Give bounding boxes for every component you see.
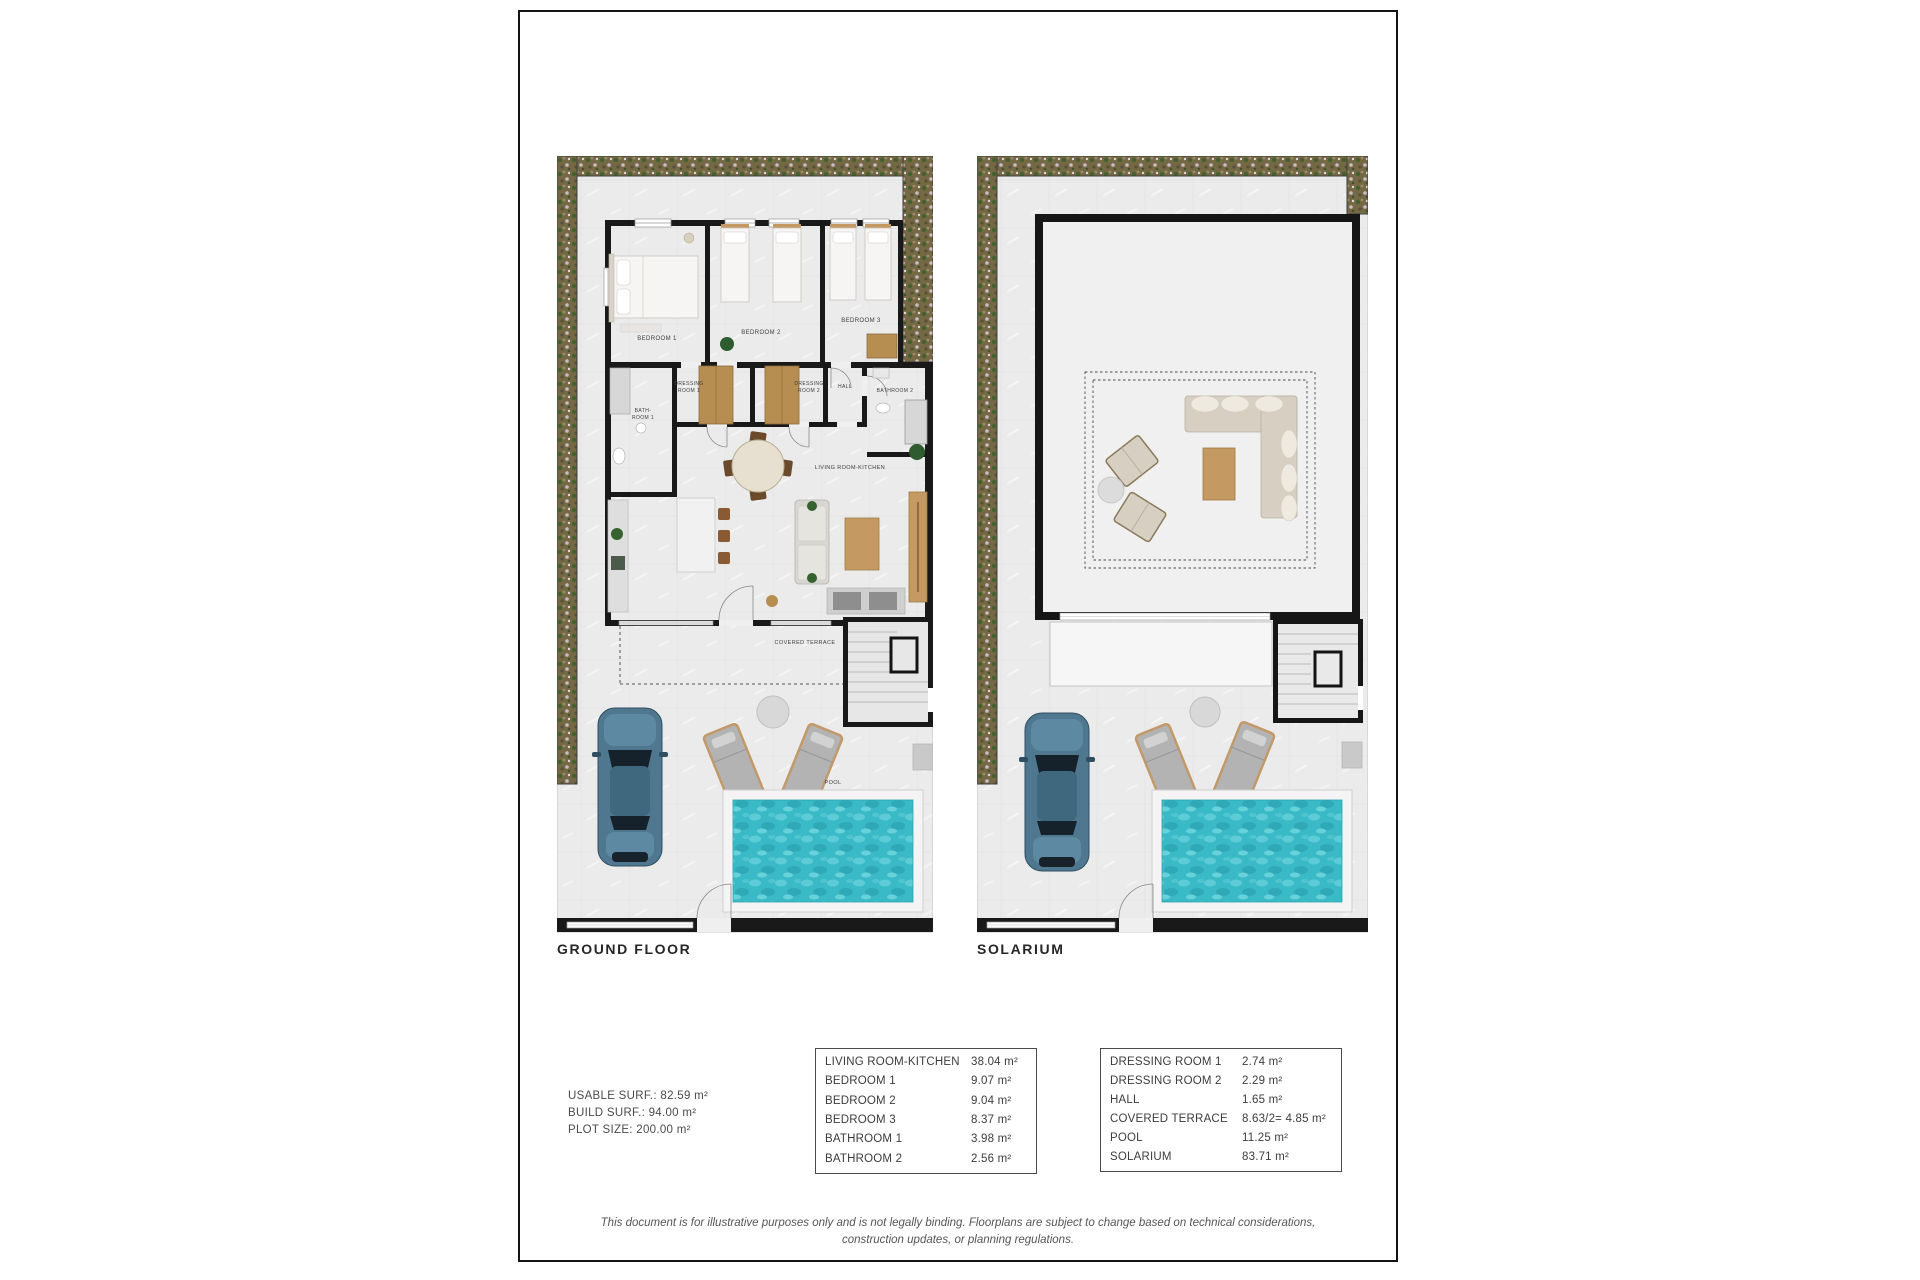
round-table: [757, 696, 789, 728]
svg-text:ROOM 1: ROOM 1: [678, 388, 700, 394]
bathroom-1-label: BATH-: [635, 408, 652, 414]
garden-strip-right: [1347, 156, 1368, 214]
floorplan-document: BEDROOM 1 BEDROOM 2 BEDROOM 3 DRESSING R…: [0, 0, 1920, 1280]
entrance-gap: [1119, 918, 1153, 932]
plot-size: PLOT SIZE: 200.00 m²: [568, 1122, 708, 1139]
usable-surface: USABLE SURF.: 82.59 m²: [568, 1088, 708, 1105]
solarium-caption: SOLARIUM: [977, 941, 1064, 957]
toilet-2: [876, 403, 890, 413]
pool: [723, 790, 923, 912]
garden-strip-top: [977, 156, 1368, 176]
ground-floor-caption: GROUND FLOOR: [557, 941, 691, 957]
wardrobe: [867, 334, 897, 358]
garden-strip-left: [977, 156, 997, 784]
build-surface: BUILD SURF.: 94.00 m²: [568, 1105, 708, 1122]
dressing-2-label: DRESSING: [794, 381, 823, 387]
table-row: BEDROOM 29.04 m²: [816, 1092, 1036, 1111]
kitchen-island: [677, 498, 715, 572]
stool: [718, 508, 730, 520]
table-row: DRESSING ROOM 12.74 m²: [1101, 1053, 1341, 1072]
walkway: [1050, 622, 1272, 686]
stool: [718, 552, 730, 564]
plant: [909, 444, 925, 460]
disclaimer-line: construction updates, or planning regula…: [518, 1232, 1398, 1249]
sink-1: [636, 423, 646, 433]
table-row: BEDROOM 38.37 m²: [816, 1111, 1036, 1130]
svg-text:ROOM 2: ROOM 2: [798, 388, 820, 394]
shower-2: [905, 400, 927, 444]
ground-floor-plan: BEDROOM 1 BEDROOM 2 BEDROOM 3 DRESSING R…: [557, 156, 933, 937]
table-row: POOL11.25 m²: [1101, 1129, 1341, 1148]
pool-label: POOL: [825, 780, 842, 786]
sink-2: [873, 368, 889, 378]
coffee-table: [845, 518, 879, 570]
kitchen-sink: [611, 556, 625, 570]
round-table: [1190, 697, 1220, 727]
garden-strip-right: [903, 156, 933, 362]
plant: [611, 528, 623, 540]
living-room-label: LIVING ROOM-KITCHEN: [815, 465, 885, 471]
table-row: COVERED TERRACE8.63/2= 4.85 m²: [1101, 1110, 1341, 1129]
mat: [1342, 742, 1362, 768]
dressing-1-label: DRESSING: [674, 381, 703, 387]
svg-text:ROOM 1: ROOM 1: [632, 415, 654, 421]
side-table: [766, 595, 778, 607]
stairs: [843, 617, 933, 727]
mat: [913, 744, 933, 770]
plant: [720, 337, 734, 351]
table-row: DRESSING ROOM 22.29 m²: [1101, 1072, 1341, 1091]
garden-strip-left: [557, 156, 577, 784]
bedroom-1-label: BEDROOM 1: [637, 336, 677, 342]
table-row: BATHROOM 13.98 m²: [816, 1130, 1036, 1149]
hall-label: HALL: [838, 384, 852, 390]
car: [1019, 713, 1095, 871]
entrance-gap: [697, 918, 731, 932]
stool: [718, 530, 730, 542]
shower-1: [610, 368, 630, 414]
solarium-plan: [977, 156, 1368, 937]
solarium-structure: [1035, 214, 1360, 686]
disclaimer: This document is for illustrative purpos…: [518, 1215, 1398, 1248]
round-rug: [1098, 477, 1124, 503]
coffee-table: [1203, 448, 1235, 500]
covered-terrace-label: COVERED TERRACE: [775, 640, 836, 646]
table-row: BATHROOM 22.56 m²: [816, 1150, 1036, 1169]
table-row: LIVING ROOM-KITCHEN38.04 m²: [816, 1053, 1036, 1072]
surface-summary: USABLE SURF.: 82.59 m² BUILD SURF.: 94.0…: [568, 1088, 708, 1139]
table-row: HALL1.65 m²: [1101, 1091, 1341, 1110]
bedroom-3-label: BEDROOM 3: [841, 318, 881, 324]
garden-strip-top: [557, 156, 933, 176]
car: [592, 708, 668, 866]
bathroom-2-label: BATHROOM 2: [877, 388, 914, 394]
table-row: SOLARIUM83.71 m²: [1101, 1148, 1341, 1167]
disclaimer-line: This document is for illustrative purpos…: [518, 1215, 1398, 1232]
sofa: [795, 500, 829, 584]
toilet-1: [613, 448, 625, 464]
pool: [1152, 790, 1352, 912]
stairs: [1273, 619, 1363, 723]
table-row: BEDROOM 19.07 m²: [816, 1072, 1036, 1091]
bedroom-2-label: BEDROOM 2: [741, 330, 781, 336]
bench: [827, 588, 905, 614]
area-table-interior: LIVING ROOM-KITCHEN38.04 m² BEDROOM 19.0…: [815, 1048, 1037, 1174]
area-table-exterior: DRESSING ROOM 12.74 m² DRESSING ROOM 22.…: [1100, 1048, 1342, 1172]
